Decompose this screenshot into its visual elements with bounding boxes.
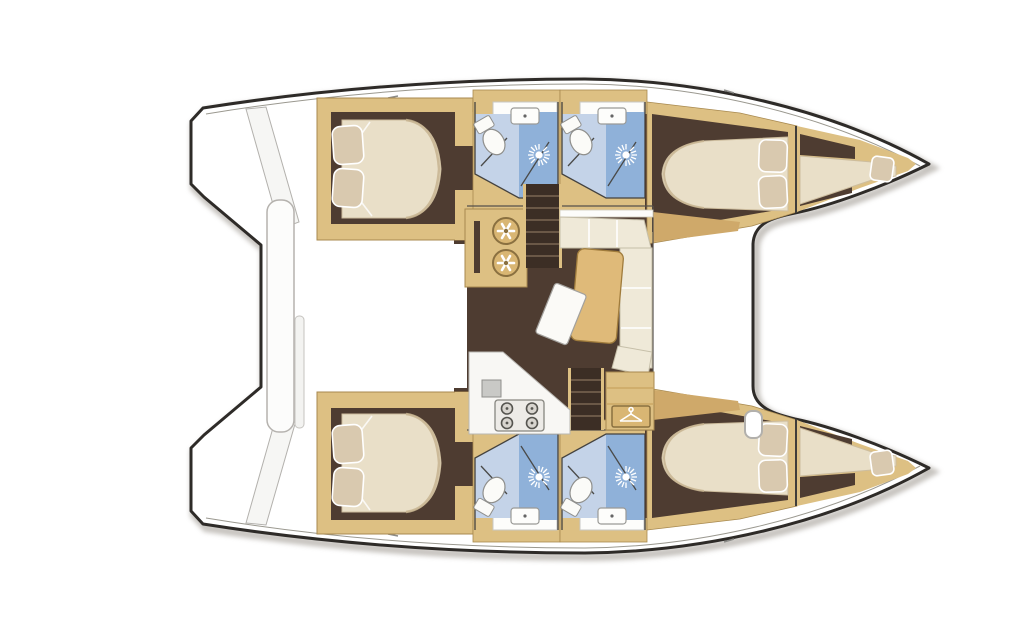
companionway-stairs-lower [568,368,604,430]
floor-plan-canvas [40,16,1024,616]
cockpit-bench-rail [295,316,304,428]
galley-sink [482,380,501,397]
galley-sink-unit [465,209,527,287]
companionway-stairs-upper [523,184,562,268]
catamaran-floor-plan [40,16,1024,616]
wardrobe [606,372,654,430]
cockpit-bench [267,200,294,432]
bow-tab-fitting [745,411,762,438]
four-burner-stove [495,400,544,431]
